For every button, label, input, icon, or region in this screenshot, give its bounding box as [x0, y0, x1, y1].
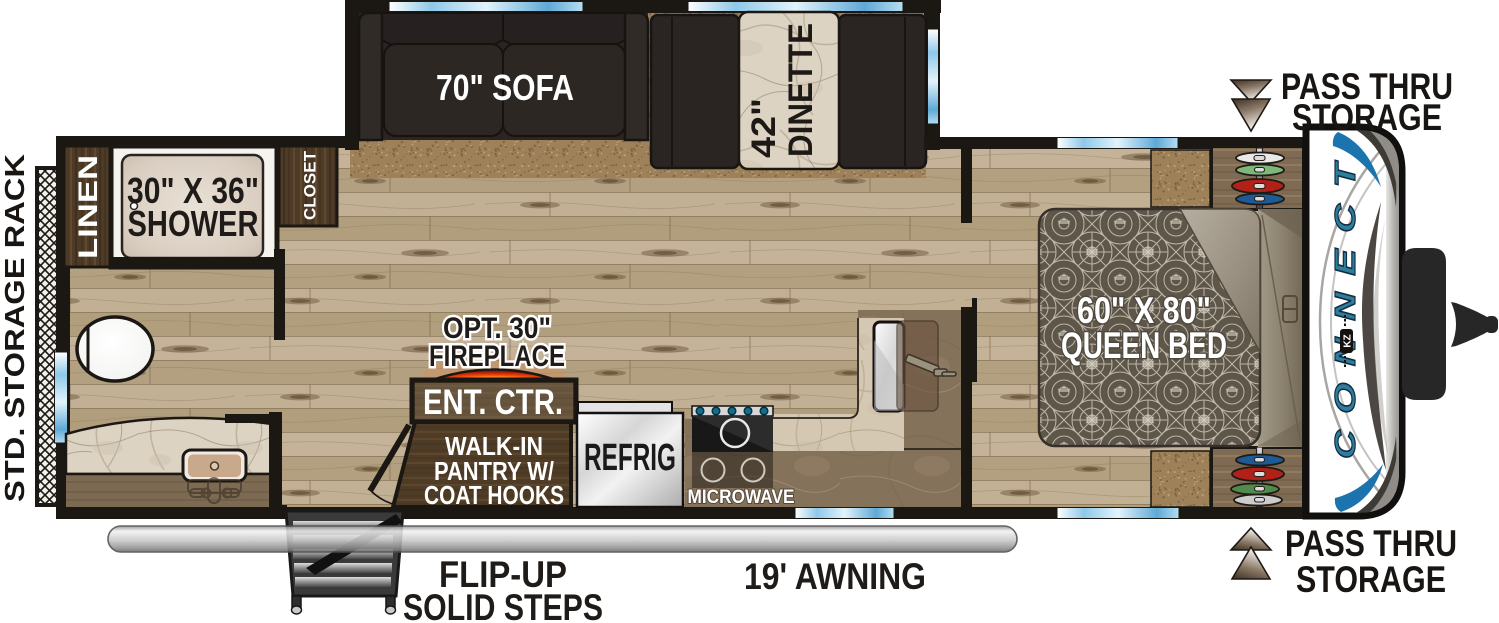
svg-text:MICROWAVE: MICROWAVE: [688, 487, 795, 508]
svg-text:ENT. CTR.: ENT. CTR.: [423, 383, 563, 422]
svg-text:KZ: KZ: [1343, 334, 1354, 347]
svg-text:DINETTE: DINETTE: [782, 23, 820, 157]
svg-text:SHOWER: SHOWER: [128, 203, 259, 244]
svg-text:SOLID STEPS: SOLID STEPS: [403, 587, 603, 623]
svg-text:42": 42": [745, 98, 783, 158]
svg-text:FIREPLACE: FIREPLACE: [429, 340, 565, 373]
svg-text:STORAGE: STORAGE: [1296, 559, 1446, 600]
svg-text:CLOSET: CLOSET: [302, 151, 320, 220]
svg-text:QUEEN BED: QUEEN BED: [1061, 325, 1227, 366]
svg-text:STD. STORAGE RACK: STD. STORAGE RACK: [0, 154, 30, 502]
svg-text:STORAGE: STORAGE: [1292, 97, 1442, 138]
svg-text:COAT HOOKS: COAT HOOKS: [424, 480, 564, 510]
svg-text:REFRIG: REFRIG: [584, 437, 676, 479]
svg-text:LINEN: LINEN: [73, 155, 103, 259]
svg-text:CONNECT: CONNECT: [1329, 160, 1361, 459]
svg-text:PASS THRU: PASS THRU: [1285, 523, 1457, 564]
svg-text:70" SOFA: 70" SOFA: [436, 67, 574, 108]
svg-text:19' AWNING: 19' AWNING: [744, 556, 926, 597]
